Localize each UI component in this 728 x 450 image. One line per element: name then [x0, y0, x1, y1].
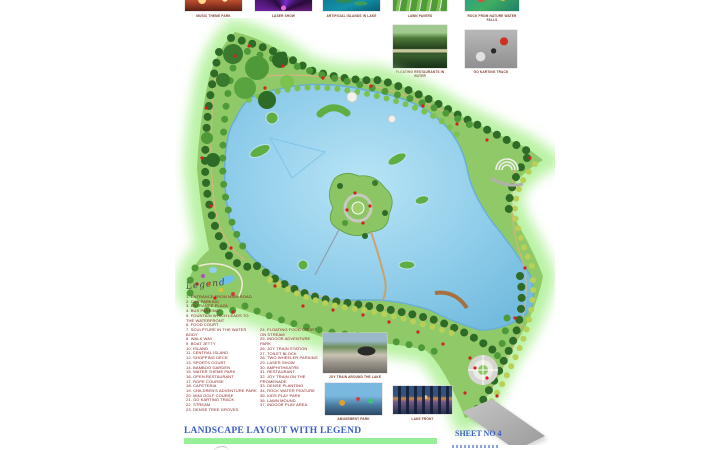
- photo-caption: JOY TRAIN AROUND THE LAKE: [323, 375, 387, 379]
- landscape-layout-sheet: MUSIC THEME PARK LASER SHOW ARTIFICIAL I…: [0, 0, 728, 450]
- legend-item: 23. DENSE TREE GROVES: [186, 408, 258, 413]
- legend-item: 37. INDOOR PLAY AREA: [260, 403, 322, 408]
- photo-lake-front: [393, 386, 452, 414]
- photo-caption: LAKE FRONT: [393, 417, 452, 421]
- photo-joy-train: [323, 333, 387, 373]
- sheet-number: SHEET NO 4: [455, 429, 502, 438]
- title-underline-bar: [184, 438, 437, 444]
- legend-block: Legend 1. ENTRANCE FROM MAIN ROAD2. CAR …: [186, 282, 322, 413]
- thumbnail-artificial-islands: [323, 0, 380, 11]
- legend-column-2: 24. FLOATING FOOD COURT ON STREAM25. IND…: [260, 328, 322, 413]
- photo-caption: AMUSEMENT PARK: [325, 417, 382, 421]
- sheet-sub-note: [452, 445, 500, 448]
- thumbnail-rock-nature: [465, 0, 519, 11]
- legend-column-1: 1. ENTRANCE FROM MAIN ROAD2. CAR PARKING…: [186, 295, 258, 413]
- thumbnail-laser-show: [255, 0, 312, 11]
- thumbnail-lawn-pavers: [393, 0, 447, 11]
- sheet-title: LANDSCAPE LAYOUT WITH LEGEND: [184, 426, 361, 436]
- thumbnail-music-theme-park: [185, 0, 242, 11]
- photo-amusement-park: [325, 383, 382, 415]
- signature-mark: [213, 446, 229, 450]
